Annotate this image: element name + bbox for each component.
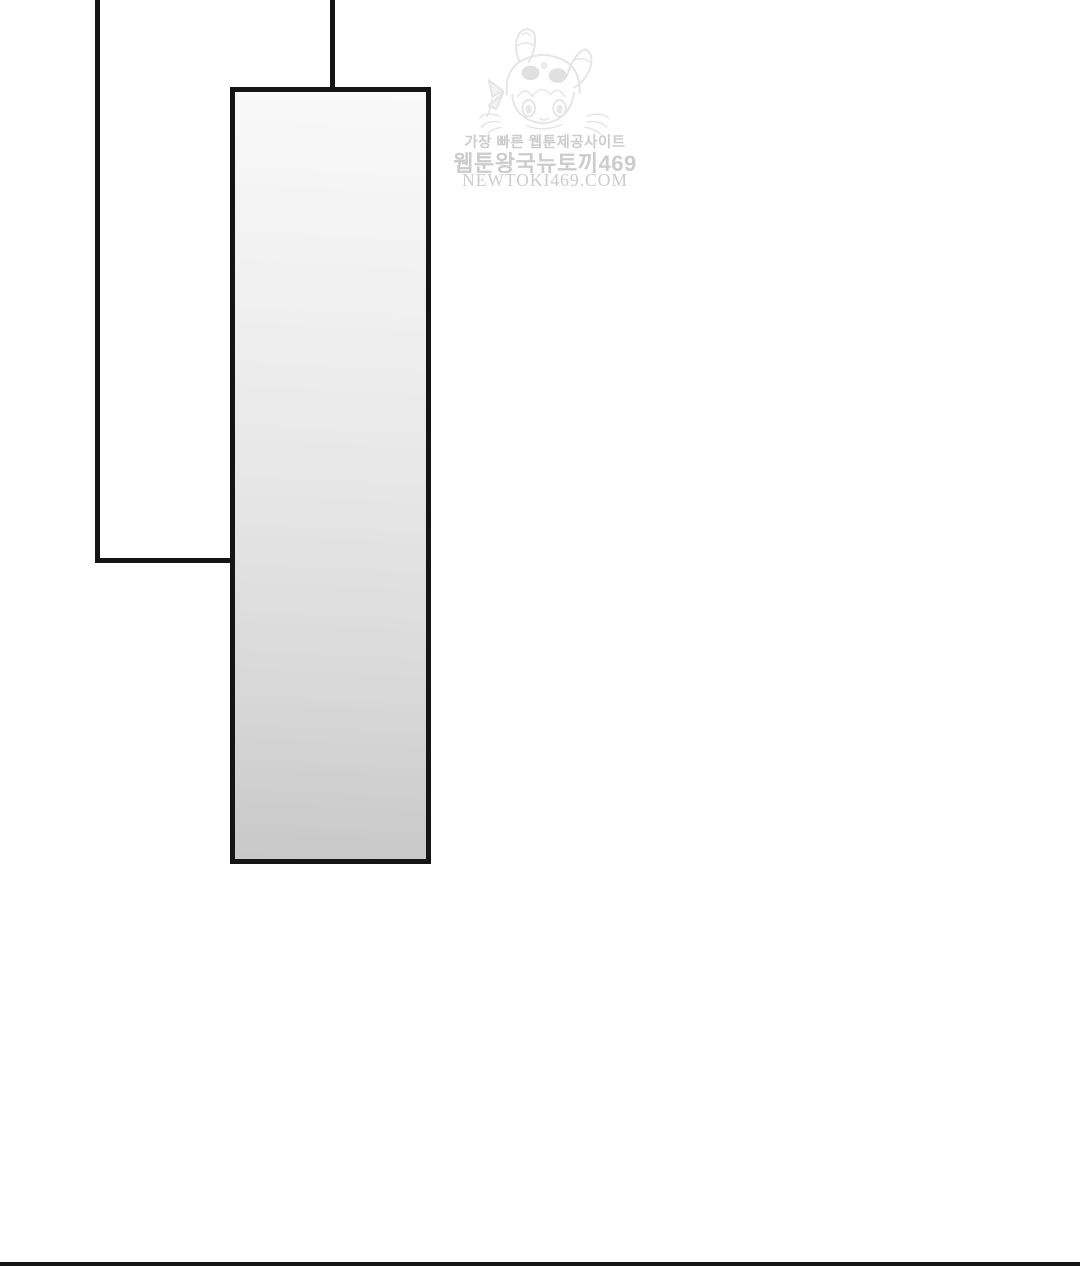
site-watermark: 가장 빠른 웹툰제공사이트 웹툰왕국뉴토끼469 NEWTOKI469.COM <box>437 22 653 194</box>
mirror-panel <box>230 87 431 864</box>
webtoon-page: 가장 빠른 웹툰제공사이트 웹툰왕국뉴토끼469 NEWTOKI469.COM <box>0 0 1080 1266</box>
bunny-hood-chibi-girl-icon <box>465 22 625 140</box>
watermark-url: NEWTOKI469.COM <box>437 170 653 191</box>
next-panel-top-border <box>0 1262 1080 1266</box>
